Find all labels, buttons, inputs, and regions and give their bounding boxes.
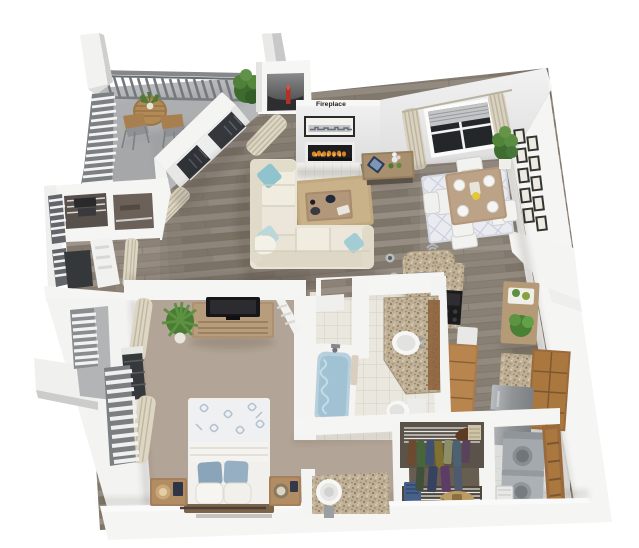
svg-text:Fireplace: Fireplace: [316, 101, 346, 108]
